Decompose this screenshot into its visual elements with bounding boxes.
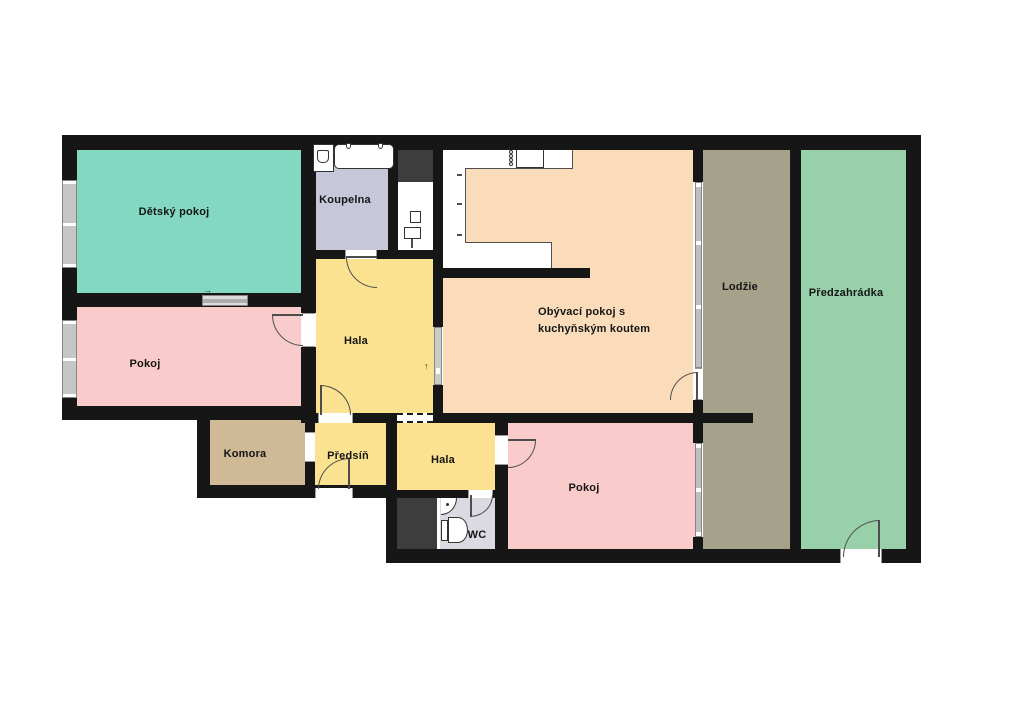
toilet-tank bbox=[441, 520, 448, 541]
sliding-door-track bbox=[203, 299, 247, 303]
window-mullion bbox=[696, 183, 701, 187]
kitchen-counter-edge bbox=[465, 242, 551, 243]
window-mullion bbox=[63, 264, 76, 267]
window-mullion bbox=[63, 358, 76, 361]
kitchen-counter-bottom bbox=[443, 242, 551, 268]
direction-arrow-right: → bbox=[203, 286, 212, 295]
kitchen-counter-edge bbox=[551, 242, 552, 268]
room-obyvaci-pokoj bbox=[443, 150, 693, 415]
window-mullion bbox=[696, 444, 701, 448]
sink-basin bbox=[317, 150, 329, 163]
room-pokoj-left bbox=[77, 307, 301, 407]
label-obyvaci-pokoj: Obývací pokoj s kuchyňským koutem bbox=[538, 304, 673, 337]
label-detsky-pokoj: Dětský pokoj bbox=[99, 206, 249, 219]
bathtub-faucet bbox=[378, 143, 383, 149]
opening-hala-living bbox=[434, 327, 442, 385]
wall-living-bottom bbox=[433, 413, 703, 423]
door-leaf-pokoj-left bbox=[272, 314, 303, 316]
window-mullion bbox=[63, 181, 76, 184]
wall-koupelna-bottom bbox=[314, 250, 443, 259]
label-lodzie: Lodžie bbox=[690, 281, 790, 294]
glazing-pokoj-lodzie bbox=[695, 443, 702, 537]
wall-hala-pokoj-b bbox=[495, 465, 508, 563]
opening-entry-predsin bbox=[315, 488, 353, 498]
label-koupelna: Koupelna bbox=[295, 194, 395, 207]
stove-burner bbox=[509, 162, 513, 166]
wall-hala-pokoj-a bbox=[495, 423, 508, 435]
window-mullion bbox=[63, 394, 76, 397]
door-leaf-hala-predsin bbox=[320, 385, 322, 415]
room-lodzie bbox=[703, 150, 790, 549]
wall-predsin-right bbox=[386, 413, 397, 549]
window-mullion bbox=[696, 305, 701, 309]
wall-hala-living-upper bbox=[433, 135, 443, 327]
wall-living-lodzie-stub-bottom bbox=[693, 537, 703, 563]
label-komora: Komora bbox=[195, 448, 295, 461]
kitchen-counter-edge bbox=[465, 168, 573, 169]
wall-komora-predsin-b bbox=[305, 462, 315, 498]
kitchen-counter-edge bbox=[465, 168, 466, 243]
wall-komora-predsin-a bbox=[305, 420, 315, 432]
door-leaf-koupelna bbox=[346, 256, 377, 258]
label-wc: WC bbox=[452, 529, 502, 542]
glazing-living-lodzie bbox=[695, 182, 702, 368]
counter-tick bbox=[457, 234, 462, 236]
shaft-wc bbox=[397, 498, 437, 549]
boiler-large bbox=[404, 227, 421, 239]
sliding-door-detsky bbox=[202, 295, 248, 306]
door-leaf-predzahradka bbox=[878, 520, 880, 557]
sink-drain-dot bbox=[446, 503, 449, 506]
kitchen-half-wall bbox=[440, 268, 590, 278]
wall-detsky-bottom bbox=[62, 293, 316, 307]
door-leaf-lodzie bbox=[696, 372, 698, 400]
room-detsky-pokoj bbox=[77, 150, 301, 293]
wall-lodzie-stub bbox=[703, 413, 753, 423]
kitchen-counter-edge bbox=[572, 150, 573, 169]
wall-exterior-right bbox=[906, 135, 921, 563]
floor-plan: → ↑ Dětský pokoj Koupelna Pokoj Hala Kom… bbox=[0, 0, 1024, 724]
room-predzahradka bbox=[801, 150, 906, 549]
door-leaf-pokoj-bottom bbox=[508, 439, 536, 441]
direction-arrow-up: ↑ bbox=[424, 362, 429, 371]
label-hala-upper: Hala bbox=[306, 335, 406, 348]
door-leaf-wc bbox=[470, 495, 472, 517]
wall-mid-b bbox=[353, 413, 397, 423]
wall-pokoj-hala bbox=[301, 347, 316, 420]
stove bbox=[516, 149, 544, 168]
wall-lodzie-predzahradka bbox=[790, 135, 801, 563]
label-pokoj-left: Pokoj bbox=[95, 358, 195, 371]
window-mullion bbox=[63, 223, 76, 226]
wall-bottom-middle bbox=[197, 485, 397, 498]
shaft-bathroom bbox=[397, 150, 433, 182]
label-predzahradka: Předzahrádka bbox=[786, 287, 906, 300]
passage-dashed-hala bbox=[397, 413, 433, 423]
window-mullion bbox=[696, 532, 701, 536]
window-detsky bbox=[62, 180, 77, 268]
bathtub bbox=[334, 144, 394, 169]
label-hala-lower: Hala bbox=[393, 454, 493, 467]
label-pokoj-bottom: Pokoj bbox=[534, 482, 634, 495]
window-mullion bbox=[696, 241, 701, 245]
window-mullion bbox=[63, 321, 76, 324]
window-pokoj-left bbox=[62, 320, 77, 398]
boiler-small bbox=[410, 211, 421, 223]
counter-tick bbox=[457, 203, 462, 205]
label-predsin: Předsíň bbox=[298, 450, 398, 463]
opening-hala-pokoj-bottom bbox=[495, 435, 508, 465]
wall-living-lodzie-stub-mid bbox=[693, 400, 703, 443]
wall-pokoj-left-bottom bbox=[62, 406, 313, 420]
window-mullion bbox=[436, 368, 440, 374]
bathtub-faucet bbox=[346, 143, 351, 149]
boiler-pipe bbox=[411, 239, 413, 248]
counter-tick bbox=[457, 174, 462, 176]
window-mullion bbox=[696, 488, 701, 492]
wall-living-lodzie-stub-top bbox=[693, 135, 703, 182]
